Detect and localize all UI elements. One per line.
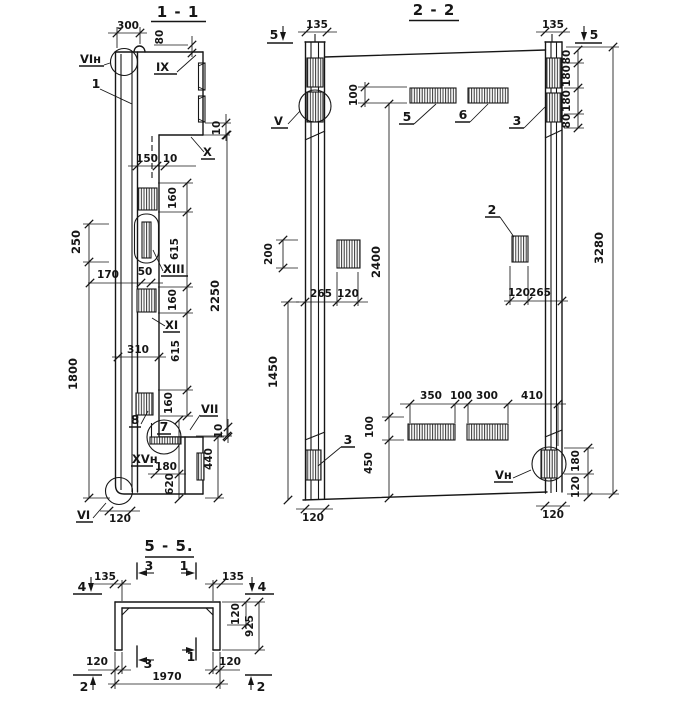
dim-100-top: 100 [348,82,407,107]
svg-text:160: 160 [167,187,179,209]
svg-text:80: 80 [561,50,573,65]
section-2-2-title: 2 - 2 [413,1,456,19]
svg-text:1: 1 [92,76,101,91]
svg-text:310: 310 [127,344,149,356]
svg-text:VII: VII [201,402,218,416]
svg-text:Vн: Vн [495,468,512,482]
panel-plate-bot-a [408,424,455,440]
svg-text:180: 180 [561,65,573,87]
svg-text:250: 250 [69,230,83,254]
drawing-sheet: 1 - 1 [0,0,700,700]
svg-text:1970: 1970 [152,671,181,683]
svg-text:XIII: XIII [163,262,185,276]
dim-135-left: 135 [298,19,337,36]
svg-text:350: 350 [420,390,442,402]
svg-text:160: 160 [163,392,175,414]
svg-text:6: 6 [459,107,468,122]
svg-text:3: 3 [344,432,353,447]
section-2-2-view: 2 - 2 5 [263,1,619,524]
svg-text:615: 615 [169,238,181,260]
svg-text:150: 150 [136,153,158,165]
svg-text:5: 5 [403,109,412,124]
dim-120-leg-left: 120 [86,652,131,674]
dim-chain-right-1-1: 160 615 160 615 160 [158,179,193,420]
cut-mark-5-left: 5 [267,26,293,43]
dim-440: 440 [203,433,224,502]
dim-120-leg-right: 120 [205,652,241,674]
dim-1450: 1450 [266,298,299,504]
section-5-5-view: 5 - 5. 4 4 135 135 [73,537,274,694]
svg-text:2400: 2400 [369,246,383,278]
svg-text:XVн: XVн [132,452,158,466]
dim-120-bottom-right: 120 [536,502,570,521]
svg-text:120: 120 [570,476,582,498]
svg-text:80: 80 [561,114,573,129]
dim-170-50: 170 50 [86,266,163,287]
dim-chain-right-top: 80 180 180 80 [561,46,584,132]
svg-text:265: 265 [529,287,551,299]
svg-text:3280: 3280 [592,232,606,264]
svg-text:120: 120 [230,603,242,625]
mark-vi-label: VI [76,503,106,522]
mark-plate-3-top-label: 3 [509,107,545,128]
svg-text:620: 620 [164,473,176,495]
svg-text:100: 100 [348,84,360,106]
panel-plate-6 [468,88,508,103]
svg-text:120: 120 [86,656,108,668]
svg-text:VIн: VIн [80,52,101,66]
dim-chain-right-bottom: 180 120 [564,444,594,501]
mark-plate-6-label: 6 [455,104,488,122]
svg-text:180: 180 [561,90,573,112]
svg-text:160: 160 [167,289,179,311]
svg-text:100: 100 [364,416,376,438]
cut-mark-4-right: 4 [245,577,274,594]
mark-x-label: X [191,137,215,159]
svg-text:440: 440 [203,448,215,470]
svg-text:120: 120 [542,509,564,521]
svg-text:615: 615 [170,340,182,362]
svg-text:180: 180 [155,461,177,473]
dim-925: 925 [222,598,265,654]
dim-80-top: 80 [154,30,196,58]
mark-plate-3-bottom-label: 3 [318,432,355,466]
embed-plate-a [138,188,157,210]
cut-mark-5-right: 5 [575,26,602,43]
dim-135-right: 135 [536,19,570,36]
svg-text:1: 1 [180,558,189,573]
svg-text:2: 2 [488,202,497,217]
svg-text:265: 265 [310,288,332,300]
svg-text:8: 8 [131,412,140,427]
svg-text:XI: XI [165,318,178,332]
cut-mark-2-left: 2 [73,675,102,694]
svg-text:10: 10 [211,121,223,136]
svg-text:10: 10 [163,153,178,165]
svg-text:3: 3 [513,113,522,128]
svg-text:120: 120 [219,656,241,668]
mark-plate-2-label: 2 [485,202,514,237]
embed-plate-b [137,289,156,312]
dim-chain-center: 2400 100 450 [363,100,404,502]
channel-cross-section [115,602,220,650]
cut-mark-3-bottom: 3 [137,646,154,671]
svg-text:300: 300 [476,390,498,402]
mark-xv-n-label: XVн [131,452,158,466]
mark-ix-label: IX [154,55,196,74]
panel-plate-bot-b [467,424,508,440]
svg-text:135: 135 [94,571,116,583]
cut-mark-1-bottom: 1 [182,638,196,664]
svg-text:X: X [203,145,212,159]
svg-text:925: 925 [244,615,256,637]
panel-plate-5 [410,88,456,103]
svg-text:120: 120 [508,287,530,299]
svg-text:450: 450 [363,452,375,474]
mark-xi-label: XI [152,318,180,332]
svg-text:135: 135 [222,571,244,583]
svg-text:3: 3 [144,656,153,671]
dim-120-bottom-left: 120 [296,505,333,524]
svg-text:50: 50 [138,266,153,278]
haunch-left [122,608,129,615]
mark-part-1-label: 1 [92,76,132,104]
svg-text:300: 300 [117,20,139,32]
dim-200: 200 [263,236,298,272]
dim-2250: 2250 [196,131,232,440]
svg-text:80: 80 [154,30,166,45]
dim-120-265-right: 120 265 [504,266,568,305]
haunch-right [206,608,213,615]
mark-plate-5-label: 5 [399,104,436,124]
svg-text:135: 135 [542,19,564,31]
panel-plate-2 [512,236,528,262]
svg-text:1: 1 [187,649,196,664]
dim-300: 300 [108,20,147,48]
node-circle-vi-bottom [106,478,133,505]
svg-text:200: 200 [263,243,275,265]
section-1-1-view: 1 - 1 [66,3,232,525]
mark-v-label: V [271,111,300,128]
svg-text:180: 180 [570,450,582,472]
dim-135-left-5-5: 135 [94,571,131,601]
dim-310: 310 [112,344,166,361]
panel-plate-mid-left [337,240,360,268]
cut-mark-1-top: 1 [180,558,196,579]
svg-text:7: 7 [160,419,169,434]
svg-text:1450: 1450 [266,356,280,388]
svg-text:135: 135 [306,19,328,31]
svg-text:IX: IX [156,60,169,74]
svg-text:2250: 2250 [208,280,222,312]
section-5-5-title: 5 - 5. [144,537,193,555]
left-column-2-2 [299,34,331,500]
dim-120-bottom-1-1: 120 [100,507,140,525]
dim-135-right-5-5: 135 [205,571,244,601]
dim-265-120-left: 265 120 [296,272,368,306]
svg-text:4: 4 [258,579,267,594]
mark-vi-n-label: VIн [79,52,110,66]
svg-text:1800: 1800 [66,358,80,390]
svg-text:3: 3 [145,558,154,573]
svg-text:120: 120 [302,512,324,524]
svg-text:120: 120 [109,513,131,525]
cut-mark-3-top: 3 [137,558,154,579]
svg-text:410: 410 [521,390,543,402]
svg-text:170: 170 [97,269,119,281]
section-1-1-title: 1 - 1 [157,3,200,21]
dim-3280: 3280 [566,43,619,498]
svg-text:2: 2 [80,679,89,694]
svg-text:VI: VI [77,508,90,522]
svg-text:2: 2 [257,679,266,694]
svg-text:5: 5 [590,27,599,42]
structural-drawing-canvas: 1 - 1 [0,0,700,700]
embed-plate-ix-bars [199,63,206,122]
lifting-loop [134,46,145,52]
svg-text:V: V [274,114,283,128]
mark-v-n-label: Vн [494,468,531,482]
svg-text:4: 4 [78,579,87,594]
svg-text:5: 5 [270,27,279,42]
svg-text:120: 120 [337,288,359,300]
cut-mark-2-right: 2 [245,675,272,694]
dim-250-1800: 250 1800 [66,220,110,502]
svg-text:100: 100 [450,390,472,402]
